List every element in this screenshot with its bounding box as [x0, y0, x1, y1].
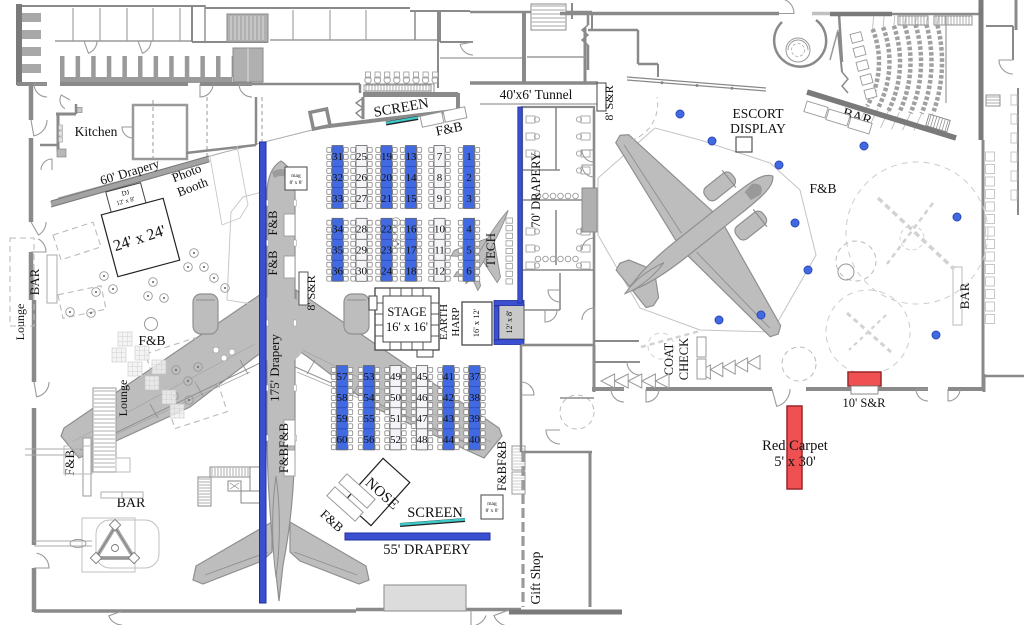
svg-text:39: 39 [469, 413, 481, 425]
svg-text:DISPLAY: DISPLAY [730, 121, 786, 136]
svg-text:5: 5 [466, 245, 472, 257]
svg-text:43: 43 [443, 413, 455, 425]
svg-text:Lounge: Lounge [116, 380, 130, 417]
svg-text:COAT: COAT [662, 342, 676, 375]
svg-text:26: 26 [356, 172, 368, 184]
svg-text:54: 54 [364, 392, 376, 404]
svg-text:22: 22 [381, 224, 392, 236]
svg-text:4: 4 [466, 224, 472, 236]
svg-text:12: 12 [434, 266, 445, 278]
svg-text:70' DRAPERY: 70' DRAPERY [529, 152, 543, 228]
svg-text:13: 13 [406, 151, 418, 163]
svg-text:55: 55 [364, 413, 376, 425]
svg-text:48: 48 [417, 434, 429, 446]
svg-text:8: 8 [437, 172, 443, 184]
svg-text:F&BF&B: F&BF&B [277, 423, 291, 473]
svg-text:F&BF&B: F&BF&B [495, 441, 509, 491]
svg-text:mag: mag [487, 501, 497, 507]
svg-text:31: 31 [332, 151, 343, 163]
svg-text:45: 45 [417, 371, 429, 383]
svg-text:14: 14 [406, 172, 418, 184]
svg-text:F&B: F&B [809, 181, 836, 196]
svg-text:33: 33 [332, 193, 344, 205]
svg-text:HARP: HARP [450, 307, 462, 336]
svg-text:19: 19 [381, 151, 393, 163]
svg-text:41: 41 [443, 371, 454, 383]
svg-text:40: 40 [469, 434, 481, 446]
svg-text:46: 46 [417, 392, 429, 404]
svg-text:12' x 8': 12' x 8' [505, 310, 514, 333]
svg-text:32: 32 [332, 172, 343, 184]
svg-text:2: 2 [466, 172, 472, 184]
svg-text:8' S&R: 8' S&R [602, 85, 616, 120]
svg-text:47: 47 [417, 413, 429, 425]
svg-text:30: 30 [356, 266, 368, 278]
svg-text:EARTH: EARTH [438, 304, 450, 340]
svg-text:9: 9 [437, 193, 443, 205]
svg-text:36: 36 [332, 266, 344, 278]
svg-text:ESCORT: ESCORT [733, 106, 785, 121]
svg-text:58: 58 [337, 392, 349, 404]
svg-text:6: 6 [466, 266, 472, 278]
svg-text:37: 37 [469, 371, 481, 383]
svg-text:50: 50 [390, 392, 402, 404]
svg-text:57: 57 [337, 371, 349, 383]
svg-text:Lounge: Lounge [13, 304, 27, 341]
svg-text:18: 18 [406, 266, 418, 278]
svg-text:BAR: BAR [27, 268, 42, 295]
svg-text:8' x 8': 8' x 8' [290, 180, 303, 186]
svg-text:59: 59 [337, 413, 349, 425]
svg-text:38: 38 [469, 392, 481, 404]
svg-text:mag: mag [291, 173, 301, 179]
svg-text:7: 7 [437, 151, 443, 163]
svg-text:16: 16 [406, 224, 418, 236]
svg-text:F&B: F&B [266, 250, 280, 275]
svg-text:20: 20 [381, 172, 393, 184]
svg-text:Gift Shop: Gift Shop [528, 551, 543, 604]
svg-text:60: 60 [337, 434, 349, 446]
svg-text:1: 1 [466, 151, 472, 163]
svg-text:51: 51 [390, 413, 401, 425]
svg-text:42: 42 [443, 392, 454, 404]
svg-text:175' Drapery: 175' Drapery [267, 334, 282, 402]
svg-text:40'x6' Tunnel: 40'x6' Tunnel [500, 87, 573, 102]
svg-text:25: 25 [356, 151, 368, 163]
svg-text:49: 49 [390, 371, 402, 383]
svg-text:15: 15 [406, 193, 418, 205]
svg-text:53: 53 [364, 371, 376, 383]
svg-text:STAGE: STAGE [387, 305, 427, 319]
svg-text:F&B: F&B [266, 210, 280, 235]
svg-text:SCREEN: SCREEN [407, 505, 463, 521]
svg-text:55' DRAPERY: 55' DRAPERY [383, 542, 471, 558]
svg-text:52: 52 [390, 434, 401, 446]
svg-text:10: 10 [434, 224, 446, 236]
svg-text:27: 27 [356, 193, 368, 205]
svg-text:TECH: TECH [483, 233, 498, 267]
svg-text:Kitchen: Kitchen [75, 124, 118, 139]
svg-text:CHECK: CHECK [677, 338, 691, 380]
svg-text:16' x 16': 16' x 16' [386, 320, 428, 334]
svg-text:Red Carpet: Red Carpet [762, 438, 828, 454]
svg-text:16' x 12': 16' x 12' [471, 308, 481, 337]
svg-text:28: 28 [356, 224, 368, 236]
svg-text:35: 35 [332, 245, 344, 257]
svg-text:11: 11 [434, 245, 445, 257]
svg-text:56: 56 [364, 434, 376, 446]
svg-text:5' x 30': 5' x 30' [774, 454, 815, 470]
svg-text:8' x 8': 8' x 8' [486, 508, 499, 514]
svg-text:44: 44 [443, 434, 455, 446]
svg-text:34: 34 [332, 224, 344, 236]
svg-text:29: 29 [356, 245, 368, 257]
svg-text:21: 21 [381, 193, 392, 205]
svg-text:17: 17 [406, 245, 418, 257]
svg-text:23: 23 [381, 245, 393, 257]
svg-text:8' S&R: 8' S&R [304, 275, 318, 310]
svg-text:3: 3 [466, 193, 472, 205]
svg-text:24: 24 [381, 266, 393, 278]
svg-text:10' S&R: 10' S&R [843, 396, 887, 410]
